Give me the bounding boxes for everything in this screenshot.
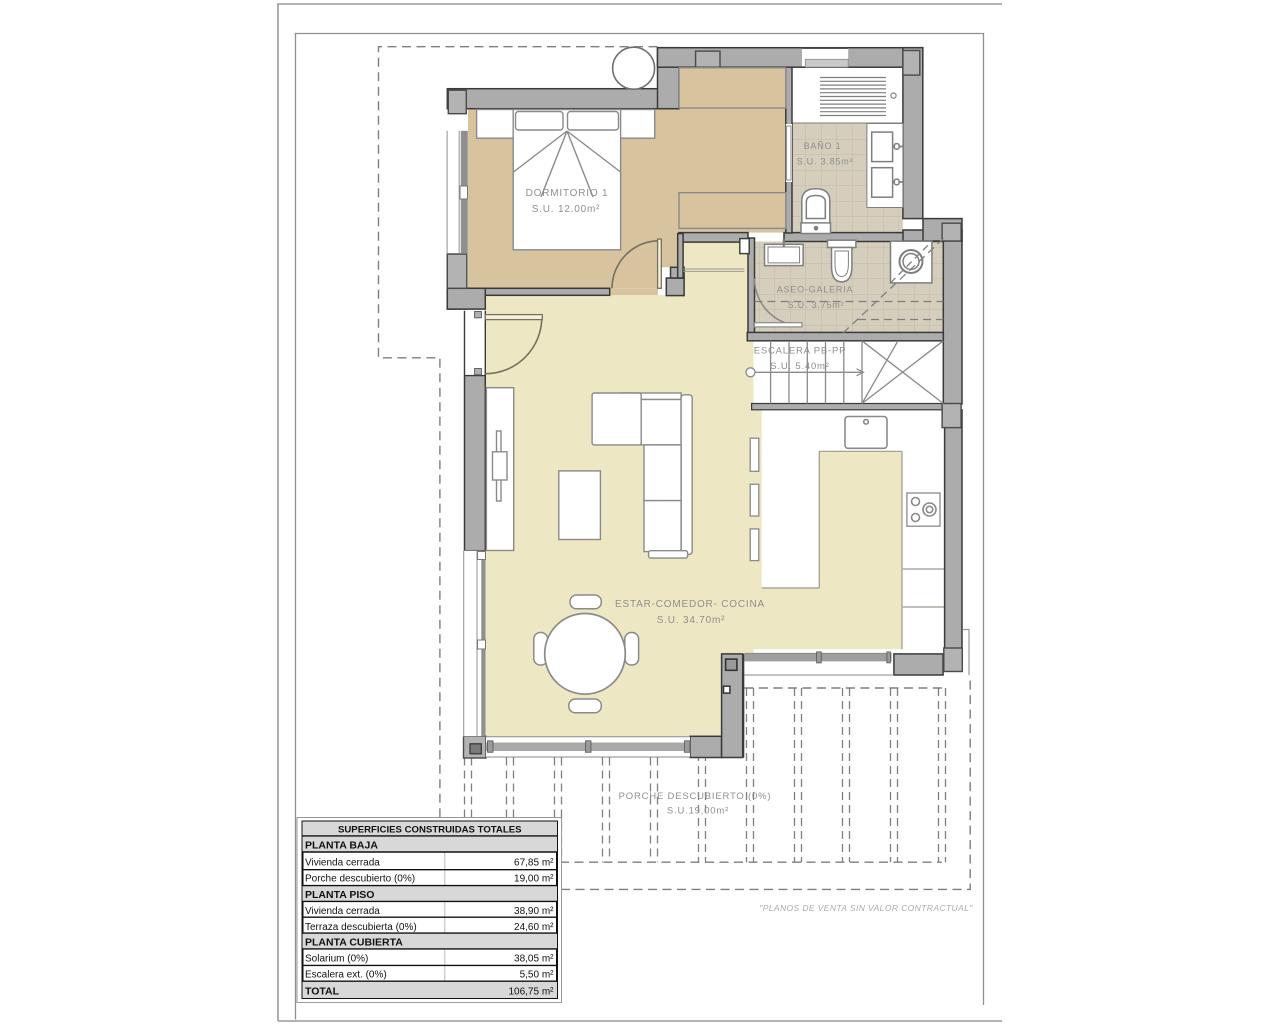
svg-text:106,75 m²: 106,75 m² — [508, 987, 554, 998]
svg-text:S.U. 3.85m²: S.U. 3.85m² — [797, 157, 854, 167]
svg-text:TOTAL: TOTAL — [305, 986, 340, 998]
svg-text:BAÑO 1: BAÑO 1 — [804, 141, 842, 151]
svg-text:S.U. 34.70m²: S.U. 34.70m² — [657, 615, 726, 626]
svg-text:Vivienda cerrada: Vivienda cerrada — [305, 906, 380, 917]
svg-text:PORCHE DESCUBIERTO (0%): PORCHE DESCUBIERTO (0%) — [619, 791, 772, 802]
svg-text:Terraza descubierta (0%): Terraza descubierta (0%) — [305, 922, 417, 933]
svg-text:PLANTA BAJA: PLANTA BAJA — [305, 840, 378, 852]
svg-text:24,60 m²: 24,60 m² — [514, 922, 554, 933]
svg-text:S.U.19,00m²: S.U.19,00m² — [667, 806, 729, 817]
svg-text:Escalera ext. (0%): Escalera ext. (0%) — [305, 970, 387, 981]
svg-text:ESCALERA PB-PP: ESCALERA PB-PP — [754, 346, 847, 357]
svg-text:S.U. 12.00m²: S.U. 12.00m² — [532, 204, 601, 215]
svg-text:Vivienda cerrada: Vivienda cerrada — [305, 858, 380, 869]
svg-text:S.U. 3.75m²: S.U. 3.75m² — [788, 300, 845, 310]
svg-text:"PLANOS DE VENTA SIN VALOR CON: "PLANOS DE VENTA SIN VALOR CONTRACTUAL" — [759, 903, 973, 913]
svg-text:PLANTA CUBIERTA: PLANTA CUBIERTA — [305, 937, 403, 949]
svg-text:Solarium (0%): Solarium (0%) — [305, 954, 368, 965]
svg-text:ESTAR-COMEDOR- COCINA: ESTAR-COMEDOR- COCINA — [615, 599, 765, 610]
svg-text:38,05 m²: 38,05 m² — [514, 954, 554, 965]
svg-text:19,00 m²: 19,00 m² — [514, 874, 554, 885]
svg-text:5,50 m²: 5,50 m² — [520, 970, 555, 981]
svg-text:ASEO-GALERIA: ASEO-GALERIA — [777, 285, 854, 295]
svg-text:SUPERFICIES CONSTRUIDAS TOTALE: SUPERFICIES CONSTRUIDAS TOTALES — [338, 825, 522, 836]
svg-text:S.U. 5.40m²: S.U. 5.40m² — [770, 361, 829, 372]
svg-text:Porche descubierto (0%): Porche descubierto (0%) — [305, 874, 415, 885]
svg-text:38,90 m²: 38,90 m² — [514, 906, 554, 917]
svg-text:PLANTA PISO: PLANTA PISO — [305, 889, 374, 901]
svg-text:67,85 m²: 67,85 m² — [514, 858, 554, 869]
svg-text:DORMITORIO 1: DORMITORIO 1 — [526, 188, 609, 199]
